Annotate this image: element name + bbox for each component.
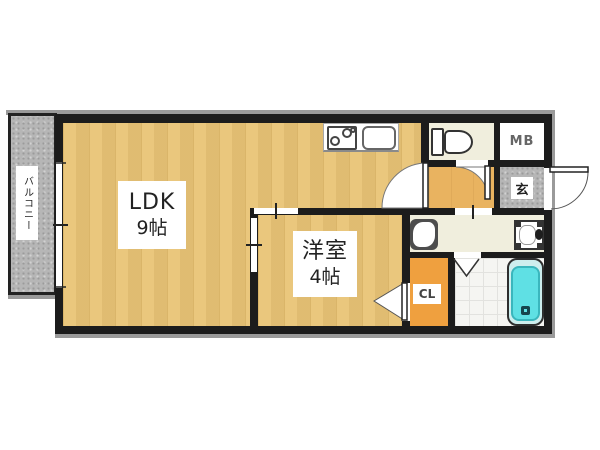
bathroom-door-gap: [454, 252, 481, 258]
toilet-icon: [444, 130, 473, 154]
ldk-label: LDK 9帖: [118, 181, 186, 249]
toilet-tank-icon: [431, 128, 444, 156]
washbasin-faucet-icon: [535, 229, 543, 240]
washing-machine-drum: [413, 222, 435, 247]
meter-box-label: MB: [500, 123, 544, 160]
entrance-door-arc: [551, 172, 588, 209]
closet-door-gap: [402, 283, 410, 321]
wall-top: [55, 114, 552, 123]
entrance-label: 玄: [511, 177, 533, 199]
entrance-label-text: 玄: [515, 179, 528, 198]
ldk-size: 9帖: [136, 217, 167, 241]
closet-label: CL: [413, 284, 441, 304]
western-room-name: 洋室: [302, 238, 348, 266]
western-room-size: 4帖: [309, 266, 340, 290]
sliding-door-vertical: [251, 218, 257, 272]
shadow-right: [552, 115, 555, 334]
washroom-door-gap: [455, 208, 492, 215]
meter-box-label-text: MB: [510, 134, 535, 149]
balcony-window: [56, 162, 62, 288]
entrance-door-gap: [544, 168, 552, 210]
hall-floor: [429, 166, 495, 208]
western-room-label: 洋室 4帖: [293, 231, 357, 297]
shadow-balcony-bottom: [8, 295, 57, 299]
balcony-label: バルコニー: [16, 166, 38, 240]
wall-kitchen-divider: [421, 114, 429, 163]
stove-burner-icon: [330, 136, 340, 146]
wall-right: [544, 114, 552, 334]
bathtub-drain-icon: [521, 306, 530, 315]
toilet-door-gap: [456, 160, 488, 167]
washbasin-bowl: [519, 225, 536, 245]
sliding-door-horizontal: [254, 208, 298, 214]
kitchen-sink-icon: [362, 126, 396, 150]
stove-burner-icon: [350, 127, 356, 133]
shadow-bottom: [55, 334, 555, 338]
wall-closet-bath-divider: [448, 252, 455, 334]
balcony-label-text: バルコニー: [22, 176, 33, 231]
floorplan-canvas: バルコニー: [0, 0, 600, 450]
entrance-door-leaf: [550, 167, 588, 172]
ldk-name: LDK: [129, 189, 176, 217]
wall-bottom: [55, 326, 552, 334]
closet-label-text: CL: [419, 287, 435, 301]
